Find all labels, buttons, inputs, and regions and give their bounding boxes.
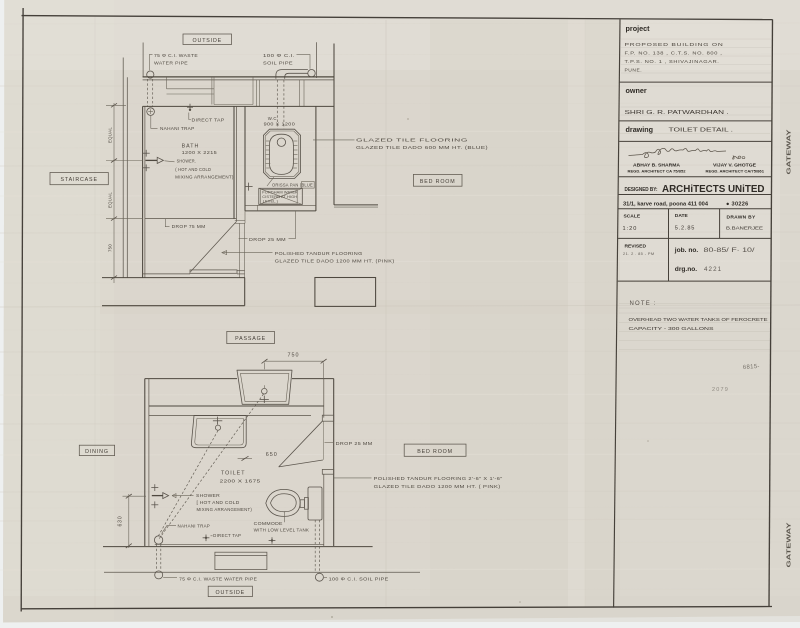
svg-text:80-85/ F· 10/: 80-85/ F· 10/ — [704, 247, 755, 254]
svg-text:DINING: DINING — [85, 449, 109, 455]
svg-text:F.P. NO. 138 , C.T.S. NO. 800: F.P. NO. 138 , C.T.S. NO. 800 , — [625, 50, 723, 56]
svg-text:ARCHiTECTS UNiTED: ARCHiTECTS UNiTED — [662, 184, 765, 195]
svg-text:ABHAY B. SHARMA: ABHAY B. SHARMA — [633, 163, 681, 169]
svg-text:4221: 4221 — [704, 266, 722, 273]
svg-text:BED ROOM: BED ROOM — [417, 449, 453, 455]
svg-text:OUTSIDE: OUTSIDE — [193, 38, 223, 44]
svg-text:SCALE: SCALE — [624, 213, 641, 219]
svg-text:75 Φ C.I. WASTE WATER PIPE: 75 Φ C.I. WASTE WATER PIPE — [179, 577, 257, 582]
svg-text:job. no.: job. no. — [674, 247, 699, 254]
svg-text:PROPOSED BUILDING ON: PROPOSED BUILDING ON — [625, 42, 724, 48]
svg-text:900 X 1200: 900 X 1200 — [264, 122, 296, 127]
svg-text:DROP 75 MM: DROP 75 MM — [172, 224, 206, 229]
svg-text:CAPACITY - 300 GALLONS: CAPACITY - 300 GALLONS — [629, 326, 714, 331]
svg-text:DIRECT TAP: DIRECT TAP — [192, 117, 225, 122]
svg-text:MIXING ARRANGEMENT): MIXING ARRANGEMENT) — [197, 507, 253, 512]
svg-text:NAHANI TRAP: NAHANI TRAP — [160, 126, 195, 131]
svg-text:GLAZED TILE DADO 600 MM H: GLAZED TILE DADO 600 MM HT. (BLUE) — [356, 145, 488, 150]
svg-text:650: 650 — [266, 452, 278, 458]
svg-text:2079: 2079 — [712, 387, 729, 393]
svg-text:TOILET: TOILET — [221, 471, 245, 477]
svg-text:[ HOT AND COLD: [ HOT AND COLD — [197, 500, 240, 505]
svg-text:GLAZED TILE DADO 1200 MM HT: GLAZED TILE DADO 1200 MM HT. ( PINK) — [374, 484, 501, 489]
svg-text:630: 630 — [118, 515, 124, 526]
svg-text:SHRI G. R. PATWARDHAN .: SHRI G. R. PATWARDHAN . — [625, 110, 729, 116]
svg-text:EQUAL: EQUAL — [108, 192, 113, 208]
svg-text:EQUAL: EQUAL — [108, 127, 113, 143]
svg-text:GATEWAY: GATEWAY — [787, 522, 793, 568]
svg-text:GATEWAY: GATEWAY — [787, 129, 793, 175]
svg-text:2200 X 1675: 2200 X 1675 — [220, 478, 261, 483]
svg-text:100 Φ C.I. SOIL PIPE: 100 Φ C.I. SOIL PIPE — [329, 577, 389, 582]
svg-text:ORISSA PAN (BLUE: ORISSA PAN (BLUE — [272, 182, 313, 187]
svg-text:drg.no.: drg.no. — [675, 266, 698, 273]
svg-text:W.C.: W.C. — [268, 116, 279, 121]
svg-text:OUTSIDE: OUTSIDE — [216, 590, 246, 596]
svg-text:DROP 25 MM: DROP 25 MM — [249, 237, 286, 242]
svg-text:NAHANI TRAP: NAHANI TRAP — [178, 523, 211, 528]
svg-text:100 Φ C.I.: 100 Φ C.I. — [263, 53, 295, 58]
svg-text:5.2.85: 5.2.85 — [675, 226, 695, 232]
svg-text:drawing: drawing — [626, 125, 654, 134]
svg-text:6815-: 6815- — [743, 364, 760, 371]
svg-text:SHOWER.: SHOWER. — [177, 159, 197, 164]
svg-text:REGD. ARCHITECT CA 75/852: REGD. ARCHITECT CA 75/852 — [628, 169, 686, 173]
svg-text:TOILET DETAIL .: TOILET DETAIL . — [669, 128, 734, 134]
svg-text:project: project — [626, 24, 651, 33]
svg-text:BATH: BATH — [182, 144, 200, 150]
svg-text:750: 750 — [288, 353, 300, 359]
svg-text:DATE: DATE — [675, 213, 689, 219]
svg-text:T.P.S. NO. 1 , SHIVAJINAGAR.: T.P.S. NO. 1 , SHIVAJINAGAR. — [625, 59, 720, 65]
svg-text:VIJAY V. GHOTGE: VIJAY V. GHOTGE — [713, 163, 757, 169]
svg-text:1:20: 1:20 — [623, 226, 638, 232]
svg-text:SHOWER: SHOWER — [196, 493, 220, 498]
svg-text:NOTE :: NOTE : — [630, 301, 657, 307]
svg-text:COMMODE: COMMODE — [254, 521, 283, 526]
svg-text:DROP 25 MM: DROP 25 MM — [336, 441, 373, 446]
svg-text:( HOT AND COLD: ( HOT AND COLD — [175, 167, 211, 172]
svg-text:GLAZED TILE DADO 1200 MM: GLAZED TILE DADO 1200 MM HT. (PINK) — [275, 259, 395, 264]
svg-text:DESIGNED BY:: DESIGNED BY: — [625, 187, 658, 193]
svg-text:PASSAGE: PASSAGE — [235, 336, 266, 342]
svg-text:STAIRCASE: STAIRCASE — [61, 177, 98, 183]
svg-text:PUNE.: PUNE. — [625, 67, 643, 73]
svg-text:WATER PIPE: WATER PIPE — [154, 61, 188, 66]
svg-text:750: 750 — [108, 244, 113, 252]
svg-text:● 30226: ● 30226 — [726, 201, 749, 207]
svg-text:BED ROOM: BED ROOM — [420, 179, 456, 185]
svg-text:POLISHED TANDUR FLOORING: POLISHED TANDUR FLOORING — [275, 251, 363, 256]
svg-text:B.BANERJEE: B.BANERJEE — [726, 226, 764, 232]
svg-text:LEVEL.): LEVEL.) — [263, 199, 279, 204]
svg-text:REGD. ARCHITECT CA/75/861: REGD. ARCHITECT CA/75/861 — [706, 169, 765, 173]
svg-text:DIRECT TAP: DIRECT TAP — [213, 533, 241, 538]
svg-text:WITH LOW LEVEL TANK: WITH LOW LEVEL TANK — [254, 528, 310, 533]
svg-text:GLAZED TILE FLOORING: GLAZED TILE FLOORING — [356, 137, 469, 142]
svg-text:OVERHEAD TWO WATER TANKS O: OVERHEAD TWO WATER TANKS OF FEROCRETE — [629, 317, 768, 322]
svg-text:1200 X 2215: 1200 X 2215 — [182, 150, 218, 155]
svg-text:DRAWN BY: DRAWN BY — [727, 214, 756, 220]
svg-text:POLISHED TANDUR FLOORING 2: POLISHED TANDUR FLOORING 2′-6″ X 1′-6″ — [374, 476, 503, 481]
svg-text:SOIL PIPE: SOIL PIPE — [263, 61, 293, 66]
svg-text:owner: owner — [626, 86, 647, 95]
svg-text:75 Φ C.I. WASTE: 75 Φ C.I. WASTE — [154, 53, 198, 58]
svg-text:REVISED: REVISED — [625, 244, 647, 250]
svg-text:31/1, karve road, poona 411 00: 31/1, karve road, poona 411 004 — [623, 201, 709, 207]
svg-text:MIXING ARRANGEMENT): MIXING ARRANGEMENT) — [175, 174, 234, 179]
svg-text:21. 2 . 85 - PM: 21. 2 . 85 - PM — [623, 251, 655, 256]
